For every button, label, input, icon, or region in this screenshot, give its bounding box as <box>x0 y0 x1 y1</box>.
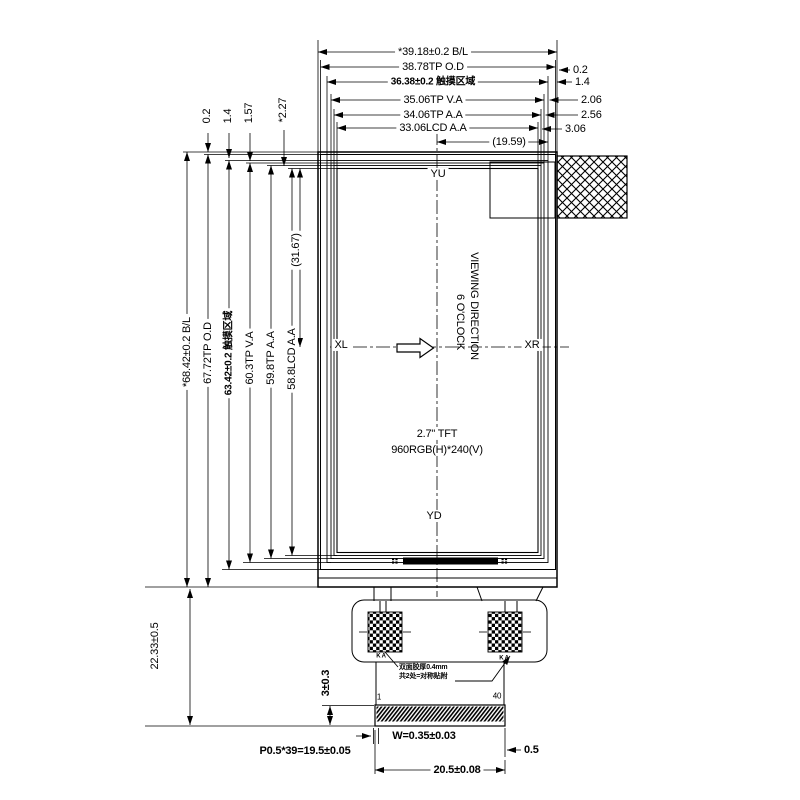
dim-module-height-bl: *68.42±0.2 B/L <box>181 314 193 390</box>
dim-fpc-length: 22.33±0.5 <box>149 622 161 669</box>
lcd-outline-drawing: *39.18±0.2 B/L 38.78TP O.D 36.38±0.2 触摸区… <box>0 0 800 800</box>
adhesive-note-line1: 双面胶厚0.4mm <box>399 664 447 672</box>
dim-pin-width: W=0.35±0.03 <box>389 730 458 742</box>
viewing-direction-arrow-icon <box>397 339 434 358</box>
driver-ic-bar <box>392 558 507 565</box>
axis-label-xl: XL <box>331 339 350 351</box>
dim-connector-width: 20.5±0.08 <box>430 764 483 776</box>
left-dimensions <box>145 130 337 587</box>
dim-half-width-ref: (19.59) <box>489 136 528 148</box>
centerlines <box>330 131 569 597</box>
adhesive-note-line2: 共2处=对称贴附 <box>399 673 447 681</box>
dim-edge-margin: 0.5 <box>524 744 539 756</box>
pad-label-right: K A <box>499 656 509 663</box>
pad-label-left: K A <box>376 654 386 661</box>
offset-left-0: 0.2 <box>201 109 213 124</box>
viewing-direction-label: VIEWING DIRECTION <box>468 252 480 360</box>
dim-tp-aa-height: 59.8TP A.A <box>265 328 277 387</box>
offset-right-0: 0.2 <box>573 64 588 76</box>
pin-number-first: 1 <box>377 694 381 703</box>
offset-right-3: 2.56 <box>581 109 602 121</box>
hatched-block <box>557 156 627 218</box>
dim-half-height-ref: (31.67) <box>290 230 302 269</box>
axis-label-yd: YD <box>424 510 445 522</box>
adhesive-pads <box>359 612 531 652</box>
dim-tp-outline-width: 38.78TP O.D <box>399 61 467 73</box>
dim-tp-aa-width: 34.06TP A.A <box>400 109 465 121</box>
offset-left-1: 1.4 <box>222 109 234 124</box>
connector-gold-fingers <box>375 705 505 726</box>
offset-left-3: *2.27 <box>277 98 289 123</box>
dim-pin-pitch: P0.5*39=19.5±0.05 <box>259 745 350 757</box>
pin-number-last: 40 <box>493 693 502 702</box>
dim-lcd-aa-height: 58.8LCD A.A <box>286 325 298 392</box>
display-resolution-label: 960RGB(H)*240(V) <box>388 444 486 456</box>
dim-tp-outline-height: 67.72TP O.D <box>202 319 214 387</box>
dim-touch-area-width: 36.38±0.2 触摸区域 <box>388 77 478 88</box>
dim-connector-height: 3±0.3 <box>320 670 332 696</box>
axis-label-xr: XR <box>522 339 543 351</box>
dim-tp-va-width: 35.06TP V.A <box>401 94 466 106</box>
dim-tp-va-height: 60.3TP V.A <box>244 328 256 387</box>
offset-right-1: 1.4 <box>575 76 590 88</box>
display-size-label: 2.7" TFT <box>414 428 461 440</box>
offset-right-2: 2.06 <box>581 94 602 106</box>
dim-module-width-bl: *39.18±0.2 B/L <box>395 46 471 58</box>
dim-touch-area-height: 63.42±0.2 触摸区域 <box>224 308 235 398</box>
axis-label-yu: YU <box>428 168 449 180</box>
dim-lcd-aa-width: 33.06LCD A.A <box>396 122 469 134</box>
offset-left-2: 1.57 <box>243 103 255 124</box>
viewing-clock-label: 6 O'CLOCK <box>454 294 466 350</box>
offset-right-4: 3.06 <box>565 123 586 135</box>
